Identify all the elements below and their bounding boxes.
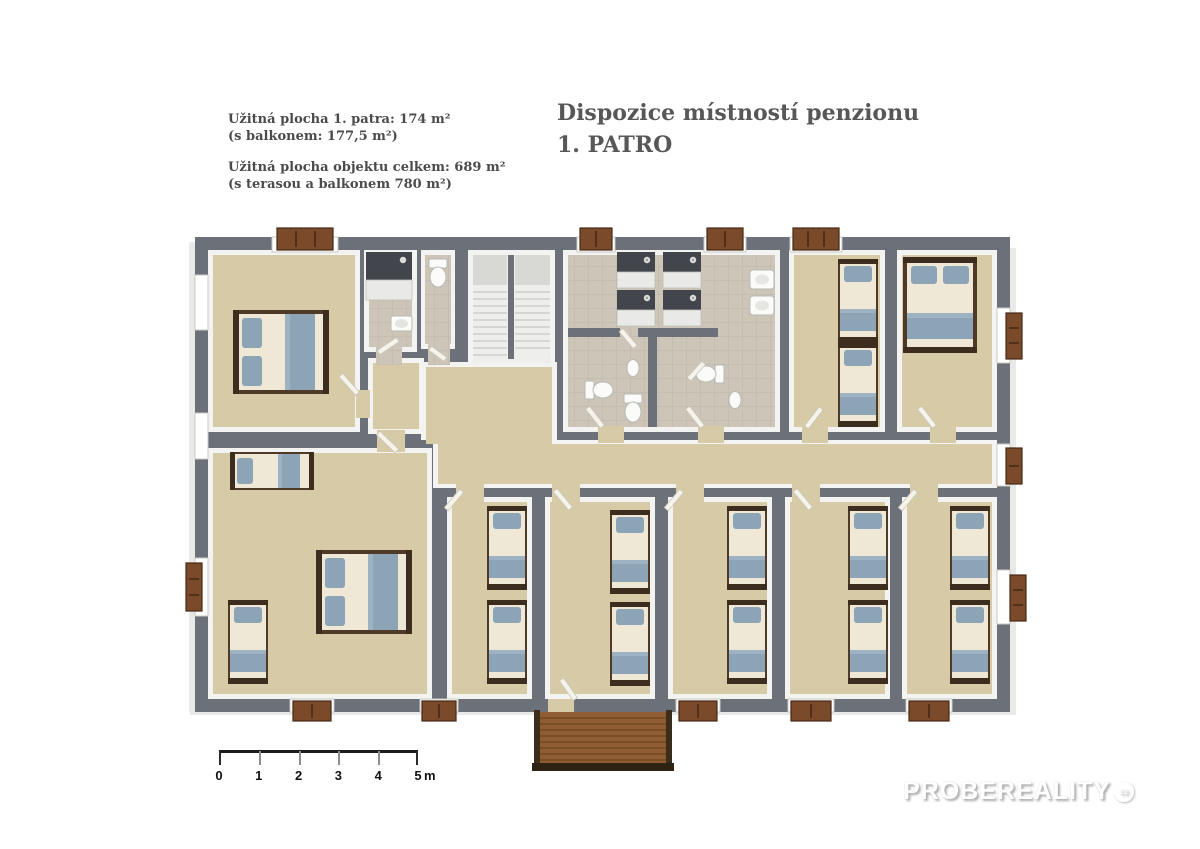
hall-floor <box>426 367 552 444</box>
scale-label-3: 3 <box>335 768 342 783</box>
single-bed <box>228 600 268 684</box>
single-bed <box>610 510 650 594</box>
double-bed <box>233 310 329 394</box>
scale-unit: m <box>424 768 436 783</box>
single-bed <box>848 600 888 684</box>
single-bed <box>487 600 527 684</box>
scale-label-2: 2 <box>295 768 302 783</box>
single-bed <box>848 506 888 590</box>
toilet <box>624 394 642 422</box>
shower-cabin <box>617 290 655 326</box>
toilet <box>585 381 613 399</box>
shower-cabin <box>663 252 701 288</box>
single-bed <box>727 506 767 590</box>
corridor-floor <box>438 444 992 484</box>
watermark-cz-badge: cz <box>1114 782 1134 802</box>
single-bed <box>610 602 650 686</box>
bidet <box>627 360 639 377</box>
vestibule-floor <box>373 363 419 429</box>
single-bed <box>950 506 990 590</box>
floor-plan <box>0 0 1200 849</box>
balcony <box>532 710 674 771</box>
single-bed <box>838 259 878 343</box>
shower-cabin <box>617 252 655 288</box>
scale-label-4: 4 <box>375 768 382 783</box>
watermark-text: PROBEREALITY <box>903 777 1111 806</box>
single-bed <box>230 452 314 490</box>
single-bed <box>727 600 767 684</box>
watermark: PROBEREALITY cz <box>903 777 1134 806</box>
double-bed <box>903 257 977 353</box>
scale-label-1: 1 <box>255 768 262 783</box>
shower-cabin <box>663 290 701 326</box>
single-bed <box>487 506 527 590</box>
scale-bar-line <box>219 750 418 753</box>
single-bed <box>838 343 878 427</box>
bidet <box>729 392 741 409</box>
floor-plan-page: Užitná plocha 1. patra: 174 m² (s balkon… <box>0 0 1200 849</box>
double-bed <box>316 550 412 634</box>
scale-label-0: 0 <box>215 768 222 783</box>
scale-bar: 0 1 2 3 4 5 m <box>219 750 418 792</box>
scale-label-5: 5 <box>414 768 421 783</box>
single-bed <box>950 600 990 684</box>
wc-room <box>429 259 447 287</box>
